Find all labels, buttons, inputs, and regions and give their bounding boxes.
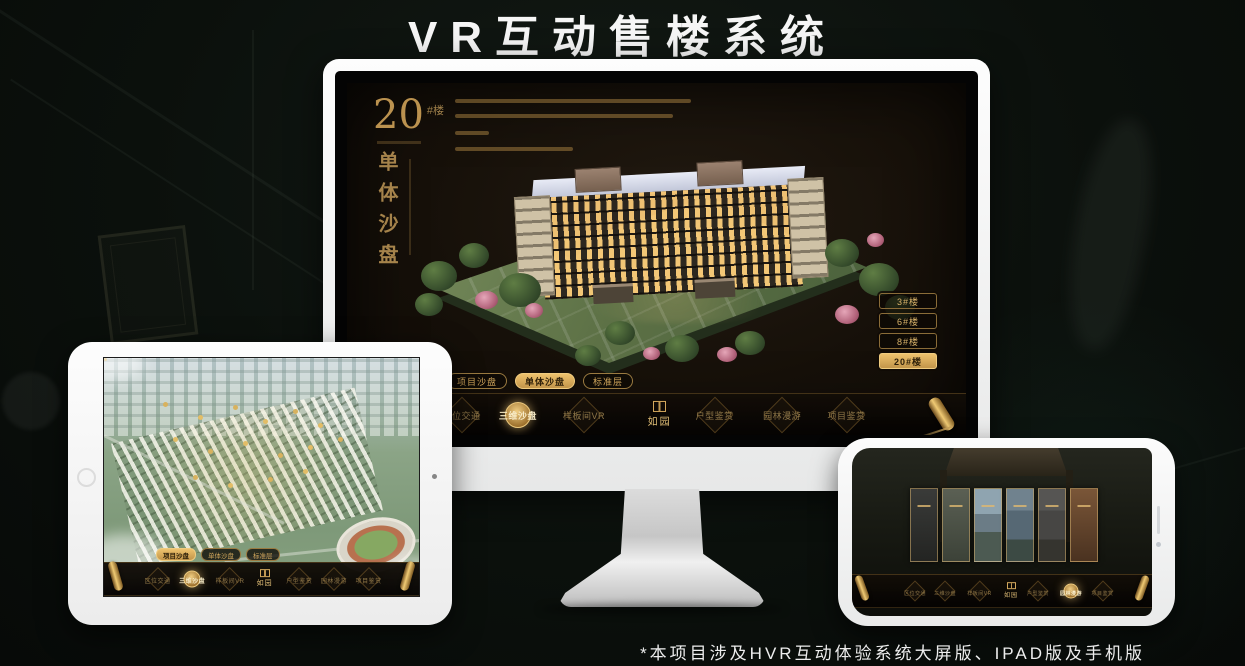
phone-camera-icon [1156,542,1161,547]
gallery-panel[interactable] [1038,488,1066,562]
seal-icon [653,401,666,412]
monitor-stand [559,489,765,607]
scroll-handle-icon[interactable] [854,574,870,601]
nav-item-location[interactable]: 区位交通 [145,570,171,588]
nav-item-showroom-vr[interactable]: 样板间VR [216,570,245,588]
nav-item-unit-gallery[interactable]: 户型鉴赏 [696,406,734,424]
gallery-panel[interactable] [1006,488,1034,562]
scroll-handle-icon[interactable] [1134,574,1150,601]
brand-logo: 如园 [257,569,273,588]
gallery-panel[interactable] [1070,488,1098,562]
nav-item-unit-gallery[interactable]: 户型鉴赏 [1027,582,1049,600]
nav-item-project-gallery[interactable]: 项目鉴赏 [828,406,866,424]
tree [859,263,899,296]
gallery-panel[interactable] [942,488,970,562]
floor-button-3[interactable]: 3#楼 [879,293,937,309]
subtab-standard-floor[interactable]: 标准层 [246,548,280,561]
flower-bush [717,347,737,362]
brand-logo: 如园 [648,401,672,428]
brand-logo: 如园 [1004,582,1018,599]
interior-beam [944,448,1068,476]
nav-item-location[interactable]: 区位交通 [904,582,926,600]
tree [605,321,635,345]
nav-item-garden-roam[interactable]: 园林漫游 [763,406,801,424]
poster-canvas: VR互动售楼系统 20 #楼 单体沙盘 [0,0,1245,666]
subtab-project-sandtable[interactable]: 项目沙盘 [156,548,196,561]
phone-speaker-icon [1157,506,1160,534]
apartment-building [539,166,803,299]
bg-plaque-frame [98,225,199,345]
bg-road-line [10,79,330,288]
floor-button-6[interactable]: 6#楼 [879,313,937,329]
subtab-single-sandtable[interactable]: 单体沙盘 [201,548,241,561]
nav-item-showroom-vr[interactable]: 样板间VR [967,582,991,600]
nav-item-garden-roam[interactable]: 园林漫游 [321,570,347,588]
gallery-panel-row [910,488,1098,562]
flower-bush [525,303,543,318]
tablet-camera-icon [432,474,437,479]
nav-item-showroom-vr[interactable]: 样板间VR [563,406,605,424]
page-title: VR互动售楼系统 [0,1,1245,65]
building-heading: 20 #楼 [373,93,444,137]
building-number: 20 [373,93,424,137]
phone-device: 区位交通 三维沙盘 样板间VR 如园 户型鉴赏 园林漫游 项目鉴赏 [838,438,1175,626]
main-navbar: 区位交通 三维沙盘 样板间VR 如园 户型鉴赏 园林漫游 项目鉴赏 [104,562,419,596]
footnote-caption: *本项目涉及HVR互动体验系统大屏版、IPAD版及手机版 [640,639,1145,664]
scroll-handle-icon[interactable] [926,395,956,432]
seal-icon [260,569,270,577]
gallery-panel[interactable] [974,488,1002,562]
subtab-project-sandtable[interactable]: 项目沙盘 [447,373,507,389]
tablet-screen: 项目沙盘 单体沙盘 标准层 区位交通 三维沙盘 样板间VR 如园 户型鉴赏 园林… [103,357,420,597]
tree [499,273,541,307]
nav-item-project-gallery[interactable]: 项目鉴赏 [356,570,382,588]
flower-bush [475,291,498,309]
tree [459,243,489,268]
bg-river-shape [1052,113,1169,354]
floor-button-8[interactable]: 8#楼 [879,333,937,349]
scroll-handle-icon[interactable] [399,560,416,591]
gallery-panel[interactable] [910,488,938,562]
seal-icon [1006,582,1015,589]
monitor-stand-shadow [540,604,784,614]
bg-road-line [252,30,254,290]
floor-button-20[interactable]: 20#楼 [879,353,937,369]
phone-screen: 区位交通 三维沙盘 样板间VR 如园 户型鉴赏 园林漫游 项目鉴赏 [852,448,1152,616]
bg-light-circle [2,372,60,430]
subtab-single-sandtable[interactable]: 单体沙盘 [515,373,575,389]
tree [415,293,443,316]
intro-text-line [455,99,691,103]
lit-window-facade [540,184,803,299]
entrance-portico [694,278,735,299]
tree [421,261,457,291]
intro-text-line [455,114,673,118]
subtab-group: 项目沙盘 单体沙盘 标准层 [447,373,633,389]
building-render[interactable] [407,143,907,393]
nav-item-3d-sandtable[interactable]: 三维沙盘 [179,570,205,588]
subtab-standard-floor[interactable]: 标准层 [583,373,633,389]
roof-cap [575,167,622,193]
nav-item-3d-sandtable[interactable]: 三维沙盘 [934,582,956,600]
floor-button-group: 3#楼 6#楼 8#楼 20#楼 [879,293,937,373]
subtab-group: 项目沙盘 单体沙盘 标准层 [156,548,280,561]
nav-item-project-gallery[interactable]: 项目鉴赏 [1091,582,1113,600]
entrance-portico [593,283,634,304]
roof-cap [696,160,743,186]
nav-item-unit-gallery[interactable]: 户型鉴赏 [286,570,312,588]
tree [825,239,859,267]
nav-item-3d-sandtable[interactable]: 三维沙盘 [499,406,537,424]
building-wing [787,177,828,279]
scroll-handle-icon[interactable] [107,560,124,591]
tablet-home-button[interactable] [77,468,96,487]
nav-item-garden-roam[interactable]: 园林漫游 [1060,582,1082,600]
flower-bush [643,347,660,360]
intro-text-line [455,131,489,135]
tree [735,331,765,355]
flower-bush [835,305,859,324]
tree [575,345,601,366]
flower-bush [867,233,884,247]
tablet-device: 项目沙盘 单体沙盘 标准层 区位交通 三维沙盘 样板间VR 如园 户型鉴赏 园林… [68,342,452,625]
building-number-suffix: #楼 [427,102,444,118]
main-navbar: 区位交通 三维沙盘 样板间VR 如园 户型鉴赏 园林漫游 项目鉴赏 [852,574,1152,608]
tree [665,335,699,362]
heading-vertical-text: 单体沙盘 [373,151,402,275]
